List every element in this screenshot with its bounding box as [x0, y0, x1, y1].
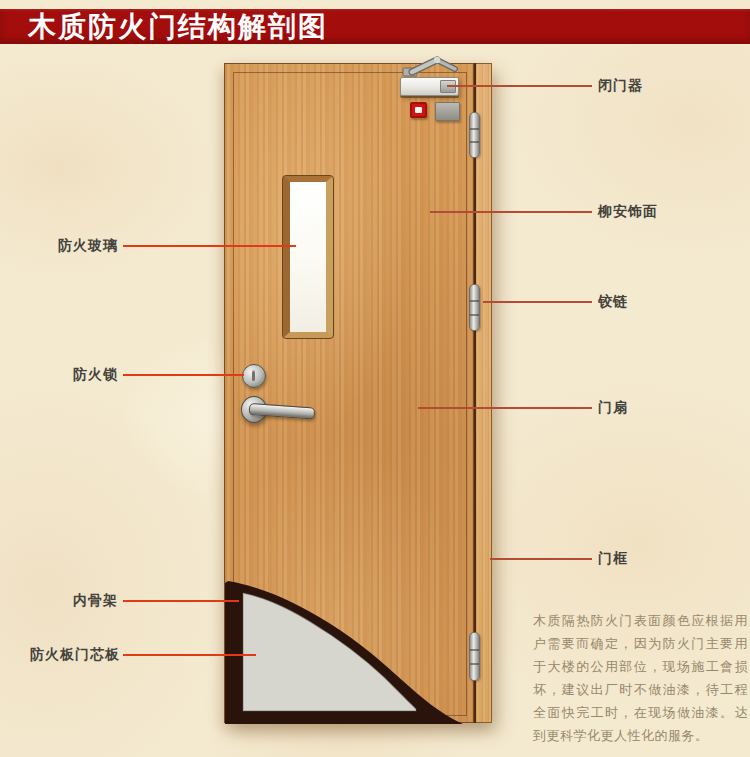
annotation-door-frame: 门框	[490, 551, 628, 567]
core-board-shape	[243, 593, 416, 711]
leader-line	[123, 245, 296, 247]
leader-line	[430, 211, 592, 213]
annotation-inner-skeleton: 内骨架	[30, 593, 239, 609]
annotation-hinge: 铰链	[483, 294, 628, 310]
annotation-fire-lock: 防火锁	[30, 367, 244, 383]
page-title: 木质防火门结构解剖图	[0, 9, 750, 44]
leader-line	[447, 85, 592, 87]
hinge-bottom	[469, 632, 480, 681]
annotation-hinge-label: 铰链	[598, 293, 628, 311]
leader-line	[123, 600, 239, 602]
indicator-box	[410, 102, 427, 118]
description-paragraph: 木质隔热防火门表面颜色应根据用户需要而确定，因为防火门主要用于大楼的公用部位，现…	[533, 609, 748, 747]
annotation-door-leaf-label: 门扇	[598, 399, 628, 417]
poster: 木质防火门结构解剖图	[0, 0, 750, 757]
leader-line	[418, 407, 592, 409]
annotation-door-frame-label: 门框	[598, 550, 628, 568]
annotation-fire-lock-label: 防火锁	[30, 366, 118, 384]
mount-box	[435, 102, 460, 121]
annotation-fire-glass-label: 防火玻璃	[30, 237, 118, 255]
hinge-top	[469, 112, 480, 158]
title-banner: 木质防火门结构解剖图	[0, 9, 750, 44]
cutaway-section	[225, 581, 475, 724]
annotation-inner-skeleton-label: 内骨架	[30, 592, 118, 610]
annotation-veneer-label: 柳安饰面	[598, 203, 658, 221]
annotation-core-board: 防火板门芯板	[30, 647, 256, 663]
annotation-door-closer: 闭门器	[447, 78, 643, 94]
leader-line	[123, 374, 244, 376]
door-frame	[476, 63, 492, 723]
annotation-veneer: 柳安饰面	[430, 204, 658, 220]
annotation-door-closer-label: 闭门器	[598, 77, 643, 95]
door-leaf	[224, 63, 474, 723]
fire-lock-cylinder	[242, 364, 266, 388]
leader-line	[123, 654, 256, 656]
annotation-core-board-label: 防火板门芯板	[30, 646, 118, 664]
hinge-middle	[469, 284, 480, 331]
annotation-fire-glass: 防火玻璃	[30, 238, 296, 254]
fire-door-illustration	[224, 63, 492, 723]
leader-line	[483, 301, 592, 303]
annotation-door-leaf: 门扇	[418, 400, 628, 416]
fire-glass-window	[283, 176, 333, 338]
leader-line	[490, 558, 592, 560]
